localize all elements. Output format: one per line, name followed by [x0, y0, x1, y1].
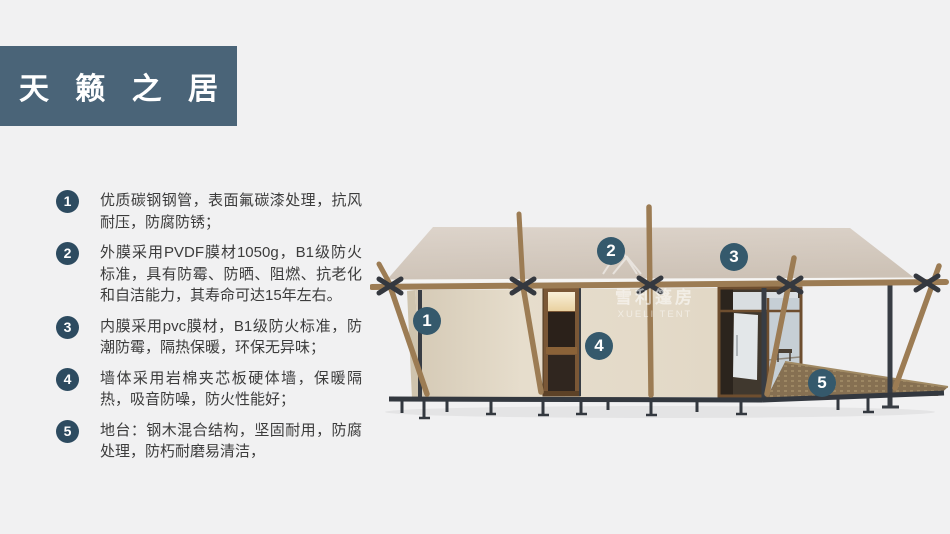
- title-box: 天 籁 之 居: [0, 46, 237, 126]
- feature-text-2: 外膜采用PVDF膜材1050g，B1级防火标准，具有防霉、防晒、阻燃、抗老化和自…: [100, 242, 362, 307]
- list-item: 1 优质碳钢钢管，表面氟碳漆处理，抗风耐压，防腐防锈；: [56, 190, 376, 233]
- entry-door: [543, 287, 580, 396]
- watermark-en: XUELI TENT: [618, 309, 693, 320]
- number-badge-3: 3: [56, 316, 79, 339]
- list-item: 5 地台：钢木混合结构，坚固耐用，防腐处理，防朽耐磨易清洁，: [56, 420, 376, 463]
- callout-marker-3: 3: [720, 243, 748, 271]
- callout-marker-2: 2: [597, 237, 625, 265]
- page-title: 天 籁 之 居: [10, 64, 227, 108]
- feature-text-5: 地台：钢木混合结构，坚固耐用，防腐处理，防朽耐磨易清洁，: [100, 420, 362, 463]
- ground-shadow: [385, 406, 935, 418]
- feature-text-1: 优质碳钢钢管，表面氟碳漆处理，抗风耐压，防腐防锈；: [100, 190, 362, 233]
- feature-text-3: 内膜采用pvc膜材，B1级防火标准，防潮防霉，隔热保暖，环保无异味；: [100, 316, 362, 359]
- list-item: 2 外膜采用PVDF膜材1050g，B1级防火标准，具有防霉、防晒、阻燃、抗老化…: [56, 242, 376, 307]
- list-item: 4 墙体采用岩棉夹芯板硬体墙，保暖隔热，吸音防噪，防火性能好；: [56, 368, 376, 411]
- tent-illustration: 雪利篷房 XUELI TENT: [370, 200, 950, 435]
- watermark-cn: 雪利篷房: [615, 287, 695, 307]
- slide: 天 籁 之 居 1 优质碳钢钢管，表面氟碳漆处理，抗风耐压，防腐防锈； 2 外膜…: [0, 0, 950, 534]
- number-badge-5: 5: [56, 420, 79, 443]
- feature-text-4: 墙体采用岩棉夹芯板硬体墙，保暖隔热，吸音防噪，防火性能好；: [100, 368, 362, 411]
- callout-marker-5: 5: [808, 369, 836, 397]
- feature-list: 1 优质碳钢钢管，表面氟碳漆处理，抗风耐压，防腐防锈； 2 外膜采用PVDF膜材…: [56, 190, 376, 472]
- number-badge-2: 2: [56, 242, 79, 265]
- callout-marker-4: 4: [585, 332, 613, 360]
- list-item: 3 内膜采用pvc膜材，B1级防火标准，防潮防霉，隔热保暖，环保无异味；: [56, 316, 376, 359]
- callout-marker-1: 1: [413, 307, 441, 335]
- number-badge-4: 4: [56, 368, 79, 391]
- tent-render: 雪利篷房 XUELI TENT: [370, 200, 950, 435]
- number-badge-1: 1: [56, 190, 79, 213]
